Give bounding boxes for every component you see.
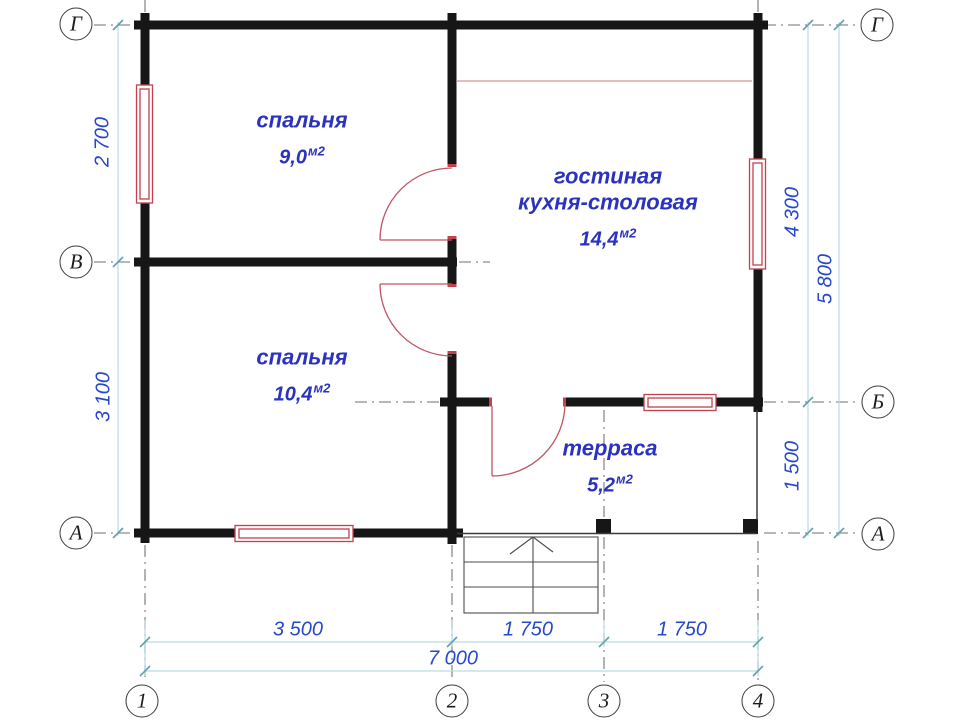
- axis-label: 4: [753, 689, 764, 714]
- axis-marker-4: 4: [742, 685, 775, 718]
- axis-marker-3: 3: [588, 685, 621, 718]
- window-bottom-inner: [239, 529, 349, 538]
- wall-bottom-left: [134, 529, 242, 538]
- dim-label-7000: 7 000: [428, 648, 478, 671]
- dim-label-5800: 5 800: [815, 254, 838, 304]
- wall-terrace-left: [440, 398, 492, 407]
- room-name: спальня: [256, 108, 347, 134]
- axis-label: Г: [871, 13, 883, 38]
- wall-terrace-mid: [565, 398, 649, 407]
- axis-marker-a-right: А: [862, 518, 895, 551]
- axis-label: А: [70, 521, 83, 546]
- wall-left-lower: [141, 200, 150, 543]
- window-right-inner: [753, 163, 762, 265]
- room-name: гостиная: [518, 164, 698, 190]
- axis-marker-2: 2: [436, 685, 469, 718]
- room-label-living: гостиная кухня-столовая 14,4м2: [518, 164, 698, 253]
- room-label-bedroom1: спальня 9,0м2: [256, 108, 347, 171]
- axis-marker-g-left: Г: [60, 8, 93, 41]
- room-name: спальня: [256, 345, 347, 371]
- opening-cap: [448, 236, 457, 239]
- door-arc-bedroom1: [380, 168, 452, 240]
- opening-cap: [448, 351, 457, 354]
- door-arc-terrace: [492, 403, 565, 476]
- opening-cap: [489, 398, 492, 407]
- stairs-outline: [464, 537, 598, 613]
- axis-marker-g-right: Г: [861, 9, 894, 42]
- room-area: 10,4м2: [256, 376, 347, 408]
- room-label-terrace: терраса 5,2м2: [562, 436, 657, 499]
- room-area-value: 5,2: [587, 474, 615, 496]
- wall-center-upper: [448, 13, 457, 167]
- door-arc-bedroom2: [380, 284, 452, 356]
- room-area: 5,2м2: [562, 467, 657, 499]
- dim-label-1500: 1 500: [782, 441, 805, 491]
- wall-right-lower: [754, 267, 763, 412]
- wall-center-mid: [448, 238, 457, 284]
- axis-label: 2: [447, 689, 458, 714]
- terrace-post-corner: [743, 519, 758, 534]
- axis-label: 3: [599, 689, 610, 714]
- dim-label-1750-a: 1 750: [503, 619, 553, 642]
- terrace-post-mid: [596, 519, 611, 534]
- room-label-bedroom2: спальня 10,4м2: [256, 345, 347, 408]
- stairs: [464, 537, 598, 613]
- dim-label-2700: 2 700: [92, 117, 115, 167]
- floor-plan: Г Г В Б А А 1 2 3 4 2 700 3 100 4 300 5 …: [0, 0, 960, 720]
- wall-left-upper: [141, 13, 150, 88]
- axis-label: 1: [137, 689, 148, 714]
- axis-marker-a-left: А: [60, 517, 93, 550]
- dim-label-1750-b: 1 750: [657, 619, 707, 642]
- axis-marker-v-left: В: [60, 246, 93, 279]
- wall-mid-horizontal: [134, 258, 457, 267]
- room-area-unit: м2: [308, 144, 325, 159]
- opening-cap: [448, 164, 457, 167]
- room-name-line2: кухня-столовая: [518, 190, 698, 216]
- walls: [134, 13, 768, 544]
- dim-label-3100: 3 100: [93, 372, 116, 422]
- room-area-value: 14,4: [580, 228, 619, 250]
- window-left-inner: [140, 89, 149, 199]
- dim-label-3500: 3 500: [273, 619, 323, 642]
- axis-label: Б: [872, 390, 884, 415]
- wall-bottom-right: [346, 529, 463, 538]
- floor-plan-drawing: [0, 0, 960, 720]
- wall-center-lower: [448, 354, 457, 544]
- room-area-value: 9,0: [279, 146, 307, 168]
- wall-right-upper: [754, 13, 763, 162]
- room-area-unit: м2: [620, 226, 637, 241]
- window-terrace-inner: [648, 398, 712, 407]
- axis-label: В: [70, 250, 83, 275]
- dim-label-4300: 4 300: [782, 187, 805, 237]
- axis-marker-b-right: Б: [862, 386, 895, 419]
- room-area: 14,4м2: [518, 221, 698, 253]
- axis-marker-1: 1: [126, 685, 159, 718]
- room-area-value: 10,4: [274, 383, 313, 405]
- room-area: 9,0м2: [256, 139, 347, 171]
- axis-label: А: [872, 522, 885, 547]
- room-name: терраса: [562, 436, 657, 462]
- room-area-unit: м2: [314, 381, 331, 396]
- wall-terrace-right: [711, 398, 763, 407]
- axis-label: Г: [70, 12, 82, 37]
- room-area-unit: м2: [616, 472, 633, 487]
